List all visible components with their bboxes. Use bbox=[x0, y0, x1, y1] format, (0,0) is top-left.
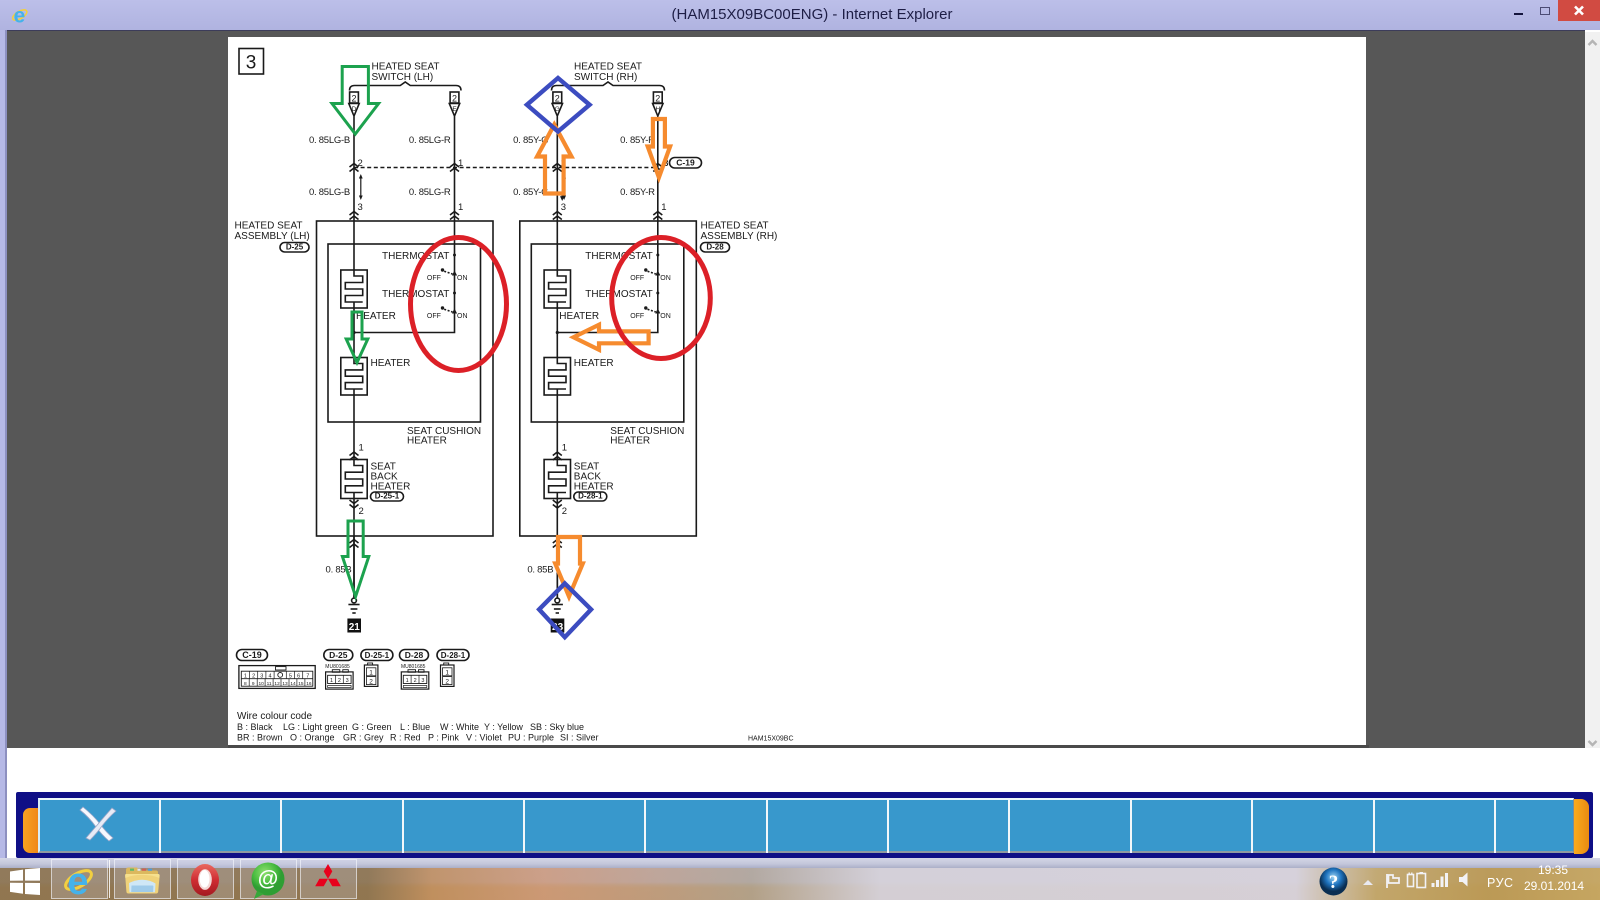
svg-text:ON: ON bbox=[660, 275, 671, 282]
svg-text:0. 85LG-B: 0. 85LG-B bbox=[309, 187, 350, 198]
svg-text:GR : Grey: GR : Grey bbox=[343, 733, 384, 743]
svg-text:G: G bbox=[555, 106, 560, 113]
svg-text:21: 21 bbox=[349, 622, 361, 633]
svg-text:SWITCH (LH): SWITCH (LH) bbox=[372, 72, 434, 83]
svg-text:2: 2 bbox=[338, 678, 341, 684]
svg-text:SI : Silver: SI : Silver bbox=[560, 733, 599, 743]
svg-text:W : White: W : White bbox=[440, 722, 479, 732]
svg-text:2: 2 bbox=[358, 158, 363, 169]
svg-text:0. 85LG-R: 0. 85LG-R bbox=[409, 187, 451, 198]
svg-text:HAM15X09BC: HAM15X09BC bbox=[748, 736, 794, 743]
svg-text:HEATER: HEATER bbox=[371, 358, 411, 369]
svg-text:2: 2 bbox=[351, 93, 356, 103]
svg-text:1: 1 bbox=[458, 202, 463, 213]
svg-text:ASSEMBLY (RH): ASSEMBLY (RH) bbox=[701, 231, 778, 242]
svg-text:11: 11 bbox=[267, 681, 272, 687]
svg-text:HEATER: HEATER bbox=[559, 311, 599, 322]
svg-text:HEATER: HEATER bbox=[610, 436, 650, 447]
svg-text:OFF: OFF bbox=[427, 275, 441, 282]
svg-text:2: 2 bbox=[555, 93, 560, 103]
svg-text:3: 3 bbox=[561, 202, 566, 213]
svg-text:1: 1 bbox=[359, 443, 364, 454]
svg-text:3: 3 bbox=[260, 673, 263, 679]
svg-text:C-19: C-19 bbox=[242, 650, 262, 660]
svg-text:HEATER: HEATER bbox=[574, 358, 614, 369]
svg-text:HEATED SEAT: HEATED SEAT bbox=[701, 221, 769, 232]
svg-text:R : Red: R : Red bbox=[390, 733, 421, 743]
svg-text:0. 85Y-R: 0. 85Y-R bbox=[620, 187, 655, 198]
svg-text:P : Pink: P : Pink bbox=[428, 733, 459, 743]
svg-text:3: 3 bbox=[358, 202, 363, 213]
svg-text:B : Black: B : Black bbox=[237, 722, 273, 732]
svg-text:1: 1 bbox=[330, 678, 333, 684]
svg-text:HEATED SEAT: HEATED SEAT bbox=[372, 62, 440, 73]
svg-text:D-25-1: D-25-1 bbox=[365, 651, 390, 660]
svg-text:6: 6 bbox=[297, 673, 300, 679]
svg-text:BR : Brown: BR : Brown bbox=[237, 733, 283, 743]
svg-text:12: 12 bbox=[274, 681, 280, 687]
svg-text:2: 2 bbox=[445, 678, 449, 685]
svg-text:L : Blue: L : Blue bbox=[400, 722, 430, 732]
svg-text:2: 2 bbox=[359, 506, 364, 517]
svg-text:D-28: D-28 bbox=[405, 650, 424, 660]
svg-text:14: 14 bbox=[290, 681, 296, 687]
svg-text:E: E bbox=[452, 106, 457, 113]
svg-text:0. 85LG-R: 0. 85LG-R bbox=[409, 135, 451, 146]
svg-text:D-25: D-25 bbox=[286, 243, 304, 252]
svg-text:OFF: OFF bbox=[427, 313, 441, 320]
svg-text:0. 85B: 0. 85B bbox=[527, 565, 553, 576]
svg-text:5: 5 bbox=[289, 673, 292, 679]
svg-text:@: @ bbox=[258, 868, 278, 891]
svg-text:D-25: D-25 bbox=[329, 650, 348, 660]
svg-text:2: 2 bbox=[414, 678, 417, 684]
svg-text:Wire colour code: Wire colour code bbox=[237, 711, 312, 722]
svg-text:D-28-1: D-28-1 bbox=[441, 651, 466, 660]
svg-text:e: e bbox=[14, 5, 26, 26]
svg-text:9: 9 bbox=[252, 681, 255, 687]
svg-text:1: 1 bbox=[244, 673, 247, 679]
svg-text:1: 1 bbox=[445, 670, 449, 677]
svg-text:C-19: C-19 bbox=[676, 158, 695, 168]
svg-text:1: 1 bbox=[458, 158, 463, 169]
svg-text:D: D bbox=[352, 106, 357, 113]
svg-text:D-28-1: D-28-1 bbox=[578, 492, 603, 501]
svg-text:16: 16 bbox=[306, 681, 312, 687]
svg-text:OFF: OFF bbox=[630, 275, 644, 282]
svg-text:THERMOSTAT: THERMOSTAT bbox=[382, 289, 449, 300]
svg-text:2: 2 bbox=[252, 673, 255, 679]
svg-text:1: 1 bbox=[562, 443, 567, 454]
svg-text:THERMOSTAT: THERMOSTAT bbox=[585, 251, 652, 262]
svg-text:2: 2 bbox=[369, 678, 373, 685]
svg-text:PU : Purple: PU : Purple bbox=[508, 733, 554, 743]
svg-text:ON: ON bbox=[660, 313, 671, 320]
svg-text:V : Violet: V : Violet bbox=[466, 733, 502, 743]
svg-text:2: 2 bbox=[452, 93, 457, 103]
svg-text:G : Green: G : Green bbox=[352, 722, 392, 732]
svg-text:2: 2 bbox=[655, 93, 660, 103]
svg-text:13: 13 bbox=[282, 681, 288, 687]
svg-text:MU801685: MU801685 bbox=[325, 664, 350, 670]
svg-text:HEATED SEAT: HEATED SEAT bbox=[574, 62, 642, 73]
svg-text:15: 15 bbox=[298, 681, 304, 687]
svg-text:4: 4 bbox=[268, 673, 271, 679]
svg-text:3: 3 bbox=[246, 53, 257, 74]
svg-text:HEATER: HEATER bbox=[407, 436, 447, 447]
svg-text:1: 1 bbox=[406, 678, 409, 684]
svg-text:0. 85Y-R: 0. 85Y-R bbox=[620, 135, 655, 146]
svg-text:2: 2 bbox=[562, 506, 567, 517]
svg-text:10: 10 bbox=[259, 681, 265, 687]
svg-text:Y : Yellow: Y : Yellow bbox=[484, 722, 523, 732]
svg-text:THERMOSTAT: THERMOSTAT bbox=[585, 289, 652, 300]
svg-text:SB : Sky blue: SB : Sky blue bbox=[530, 722, 584, 732]
svg-text:ASSEMBLY (LH): ASSEMBLY (LH) bbox=[235, 231, 310, 242]
svg-text:3: 3 bbox=[421, 678, 424, 684]
svg-text:SWITCH (RH): SWITCH (RH) bbox=[574, 72, 637, 83]
svg-text:e: e bbox=[67, 861, 88, 900]
svg-text:LG : Light green: LG : Light green bbox=[283, 722, 348, 732]
svg-text:?: ? bbox=[1329, 872, 1339, 893]
svg-text:8: 8 bbox=[244, 681, 247, 687]
svg-text:1: 1 bbox=[661, 202, 666, 213]
svg-text:7: 7 bbox=[306, 673, 309, 679]
svg-text:0. 85LG-B: 0. 85LG-B bbox=[309, 135, 350, 146]
svg-text:HEATED SEAT: HEATED SEAT bbox=[235, 221, 303, 232]
svg-text:THERMOSTAT: THERMOSTAT bbox=[382, 251, 449, 262]
svg-text:ON: ON bbox=[457, 313, 468, 320]
svg-text:OFF: OFF bbox=[630, 313, 644, 320]
svg-text:3: 3 bbox=[346, 678, 349, 684]
svg-text:O : Orange: O : Orange bbox=[290, 733, 335, 743]
svg-text:H: H bbox=[655, 106, 660, 113]
svg-text:MU801685: MU801685 bbox=[401, 664, 426, 670]
svg-text:D-28: D-28 bbox=[706, 243, 724, 252]
svg-text:D-25-1: D-25-1 bbox=[375, 492, 400, 501]
svg-text:1: 1 bbox=[369, 670, 373, 677]
svg-text:ON: ON bbox=[457, 275, 468, 282]
